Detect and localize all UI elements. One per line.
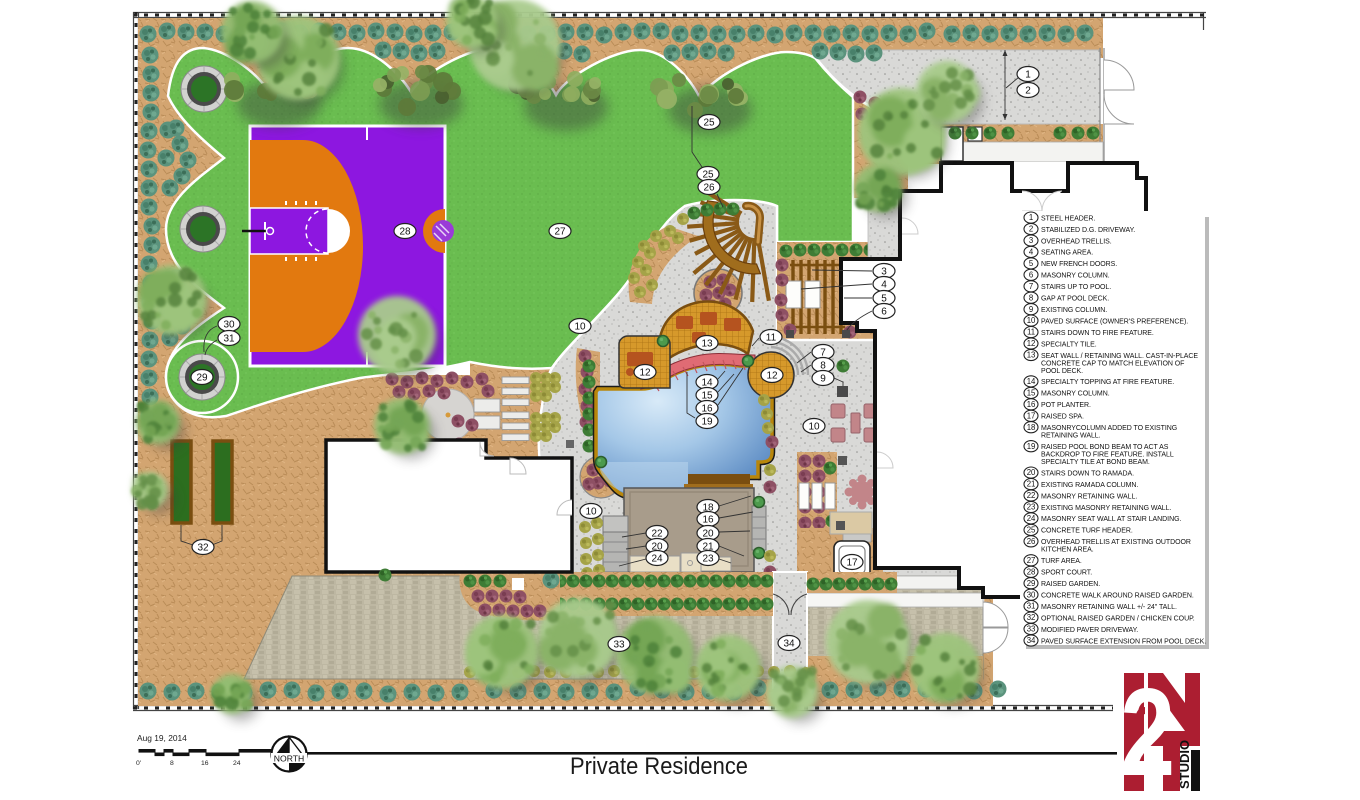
svg-text:24: 24 [233, 760, 241, 767]
svg-text:25: 25 [702, 169, 714, 180]
svg-text:32: 32 [197, 542, 209, 553]
svg-text:GAP AT POOL DECK.: GAP AT POOL DECK. [1041, 296, 1109, 303]
svg-text:2: 2 [1029, 225, 1033, 234]
svg-text:MASONRY RETAINING WALL.: MASONRY RETAINING WALL. [1041, 493, 1137, 500]
svg-text:6: 6 [1029, 270, 1033, 279]
svg-text:RETAINING WALL.: RETAINING WALL. [1041, 433, 1101, 440]
svg-text:23: 23 [1027, 503, 1036, 512]
svg-text:EXISTING COLUMN.: EXISTING COLUMN. [1041, 307, 1107, 314]
svg-text:3: 3 [881, 266, 887, 277]
svg-text:MASONRY RETAINING WALL +/- 24": MASONRY RETAINING WALL +/- 24" TALL. [1041, 604, 1177, 611]
svg-text:18: 18 [1027, 423, 1036, 432]
svg-text:28: 28 [399, 226, 411, 237]
svg-text:29: 29 [1027, 579, 1036, 588]
svg-text:STAIRS DOWN TO FIRE FEATURE.: STAIRS DOWN TO FIRE FEATURE. [1041, 330, 1154, 337]
svg-text:NORTH: NORTH [274, 754, 304, 764]
svg-text:RAISED GARDEN.: RAISED GARDEN. [1041, 581, 1100, 588]
svg-text:SEATING AREA.: SEATING AREA. [1041, 250, 1093, 257]
svg-text:TURF AREA.: TURF AREA. [1041, 558, 1082, 565]
svg-text:4: 4 [1029, 248, 1034, 257]
svg-text:25: 25 [1027, 526, 1036, 535]
svg-text:7: 7 [820, 347, 826, 358]
svg-text:10: 10 [585, 506, 597, 517]
svg-text:Aug 19, 2014: Aug 19, 2014 [137, 733, 187, 743]
svg-text:27: 27 [1027, 556, 1036, 565]
svg-text:17: 17 [846, 557, 858, 568]
svg-text:19: 19 [1027, 442, 1036, 451]
svg-text:0': 0' [136, 760, 141, 767]
svg-text:23: 23 [702, 553, 714, 564]
svg-text:9: 9 [1029, 305, 1033, 314]
svg-text:16: 16 [201, 760, 209, 767]
svg-text:21: 21 [1027, 480, 1036, 489]
svg-text:16: 16 [702, 514, 714, 525]
svg-text:SEAT WALL / RETAINING WALL. CA: SEAT WALL / RETAINING WALL. CAST-IN-PLAC… [1041, 353, 1198, 360]
svg-text:11: 11 [1027, 328, 1035, 337]
svg-text:34: 34 [1027, 636, 1036, 645]
svg-text:13: 13 [701, 338, 713, 349]
svg-text:BACKDROP TO FIRE FEATURE. INST: BACKDROP TO FIRE FEATURE. INSTALL [1041, 452, 1174, 459]
svg-text:10: 10 [1027, 316, 1036, 325]
svg-text:1: 1 [1029, 213, 1033, 222]
svg-text:25: 25 [703, 117, 715, 128]
svg-text:6: 6 [881, 306, 887, 317]
svg-text:8: 8 [1029, 293, 1033, 302]
svg-text:STABILIZED D.G. DRIVEWAY.: STABILIZED D.G. DRIVEWAY. [1041, 227, 1135, 234]
svg-text:STAIRS UP TO POOL.: STAIRS UP TO POOL. [1041, 284, 1111, 291]
svg-text:STAIRS DOWN TO RAMADA.: STAIRS DOWN TO RAMADA. [1041, 470, 1134, 477]
svg-text:10: 10 [574, 321, 586, 332]
svg-text:34: 34 [783, 638, 795, 649]
svg-text:MASONRYCOLUMN ADDED TO EXISTIN: MASONRYCOLUMN ADDED TO EXISTING [1041, 425, 1177, 432]
svg-text:PAVED SURFACE (OWNER'S PREFERE: PAVED SURFACE (OWNER'S PREFERENCE). [1041, 318, 1188, 325]
svg-text:MASONRY COLUMN.: MASONRY COLUMN. [1041, 273, 1110, 280]
svg-text:9: 9 [820, 373, 826, 384]
svg-text:33: 33 [1027, 625, 1036, 634]
svg-text:33: 33 [613, 639, 625, 650]
svg-text:26: 26 [1027, 537, 1036, 546]
svg-text:2: 2 [1120, 662, 1175, 800]
svg-text:22: 22 [1027, 491, 1036, 500]
svg-text:RAISED SPA.: RAISED SPA. [1041, 414, 1084, 421]
svg-text:CONCRETE TURF HEADER.: CONCRETE TURF HEADER. [1041, 528, 1133, 535]
svg-text:26: 26 [703, 182, 715, 193]
svg-text:PAVED SURFACE EXTENSION FROM P: PAVED SURFACE EXTENSION FROM POOL DECK. [1041, 638, 1206, 645]
svg-text:Private Residence: Private Residence [570, 753, 748, 780]
svg-text:SPECIALTY TOPPING AT FIRE FEAT: SPECIALTY TOPPING AT FIRE FEATURE. [1041, 379, 1174, 386]
svg-text:29: 29 [196, 372, 208, 383]
svg-text:14: 14 [1027, 377, 1036, 386]
svg-text:28: 28 [1027, 567, 1036, 576]
svg-text:24: 24 [1027, 514, 1036, 523]
svg-text:POOL DECK.: POOL DECK. [1041, 368, 1083, 375]
svg-text:RAISED POOL BOND BEAM TO ACT A: RAISED POOL BOND BEAM TO ACT AS [1041, 444, 1169, 451]
svg-text:8: 8 [820, 360, 826, 371]
svg-text:32: 32 [1027, 613, 1036, 622]
svg-text:POT PLANTER.: POT PLANTER. [1041, 402, 1091, 409]
svg-text:14: 14 [701, 377, 713, 388]
svg-text:EXISTING RAMADA COLUMN.: EXISTING RAMADA COLUMN. [1041, 482, 1138, 489]
svg-text:16: 16 [1027, 400, 1036, 409]
svg-text:5: 5 [1029, 259, 1034, 268]
svg-text:20: 20 [702, 528, 714, 539]
svg-text:22: 22 [651, 528, 663, 539]
svg-text:MASONRY COLUMN.: MASONRY COLUMN. [1041, 391, 1110, 398]
svg-text:8: 8 [170, 760, 174, 767]
svg-text:1: 1 [1025, 69, 1031, 80]
svg-text:13: 13 [1027, 351, 1036, 360]
svg-text:2: 2 [1025, 85, 1031, 96]
svg-text:3: 3 [1029, 236, 1033, 245]
svg-text:STUDIO: STUDIO [1177, 740, 1192, 789]
svg-text:15: 15 [1027, 389, 1036, 398]
svg-text:12: 12 [639, 367, 651, 378]
svg-text:20: 20 [1027, 468, 1036, 477]
svg-text:CONCRETE CAP TO MATCH ELEVATIO: CONCRETE CAP TO MATCH ELEVATION OF [1041, 360, 1184, 367]
svg-text:KITCHEN AREA.: KITCHEN AREA. [1041, 547, 1094, 554]
svg-text:31: 31 [1027, 602, 1036, 611]
svg-text:27: 27 [554, 226, 566, 237]
svg-text:24: 24 [651, 553, 663, 564]
svg-text:MASONRY SEAT WALL AT STAIR LAN: MASONRY SEAT WALL AT STAIR LANDING. [1041, 516, 1181, 523]
svg-text:STEEL HEADER.: STEEL HEADER. [1041, 215, 1095, 222]
svg-text:19: 19 [701, 416, 713, 427]
svg-text:31: 31 [223, 333, 235, 344]
svg-text:10: 10 [808, 421, 820, 432]
svg-text:EXISTING MASONRY RETAINING WAL: EXISTING MASONRY RETAINING WALL. [1041, 505, 1171, 512]
svg-text:SPECIALTY TILE.: SPECIALTY TILE. [1041, 341, 1097, 348]
svg-text:4: 4 [881, 279, 887, 290]
svg-text:17: 17 [1027, 411, 1036, 420]
svg-text:15: 15 [701, 390, 713, 401]
svg-text:5: 5 [881, 293, 887, 304]
svg-text:12: 12 [766, 370, 778, 381]
svg-text:16: 16 [701, 403, 713, 414]
svg-text:MODIFIED PAVER DRIVEWAY.: MODIFIED PAVER DRIVEWAY. [1041, 627, 1138, 634]
svg-text:OPTIONAL RAISED GARDEN / CHICK: OPTIONAL RAISED GARDEN / CHICKEN COUP. [1041, 615, 1195, 622]
svg-text:7: 7 [1029, 282, 1033, 291]
svg-text:CONCRETE WALK AROUND RAISED GA: CONCRETE WALK AROUND RAISED GARDEN. [1041, 593, 1194, 600]
svg-text:11: 11 [766, 332, 777, 343]
svg-text:12: 12 [1027, 339, 1036, 348]
svg-text:SPECIALTY TILE AT BOND BEAM.: SPECIALTY TILE AT BOND BEAM. [1041, 459, 1150, 466]
svg-text:OVERHEAD TRELLIS AT EXISTING O: OVERHEAD TRELLIS AT EXISTING OUTDOOR [1041, 539, 1191, 546]
svg-text:OVERHEAD TRELLIS.: OVERHEAD TRELLIS. [1041, 238, 1112, 245]
svg-text:SPORT COURT.: SPORT COURT. [1041, 570, 1092, 577]
svg-text:30: 30 [1027, 590, 1036, 599]
svg-text:NEW FRENCH DOORS.: NEW FRENCH DOORS. [1041, 261, 1117, 268]
svg-text:30: 30 [223, 319, 235, 330]
